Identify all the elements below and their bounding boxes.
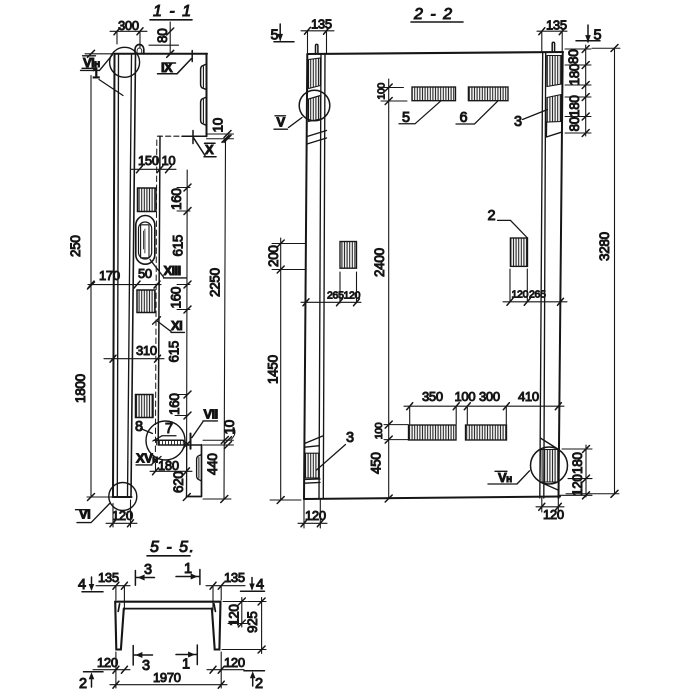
svg-text:120: 120	[227, 604, 242, 626]
svg-text:615: 615	[167, 341, 182, 363]
svg-text:2: 2	[488, 208, 496, 224]
svg-text:200: 200	[266, 245, 281, 267]
svg-text:135: 135	[98, 570, 119, 585]
svg-text:160: 160	[167, 393, 182, 415]
svg-text:250: 250	[68, 235, 83, 257]
svg-text:120: 120	[224, 655, 245, 670]
svg-text:265: 265	[529, 289, 546, 301]
svg-text:10: 10	[211, 118, 226, 132]
svg-text:8: 8	[135, 419, 143, 435]
svg-text:3: 3	[144, 562, 152, 578]
svg-text:3: 3	[346, 430, 354, 446]
svg-text:1450: 1450	[266, 355, 281, 384]
svg-text:2: 2	[255, 676, 263, 692]
svg-text:5 - 5.: 5 - 5.	[150, 539, 195, 556]
svg-text:XIII: XIII	[164, 263, 181, 278]
svg-text:2400: 2400	[372, 248, 387, 277]
svg-text:80: 80	[567, 117, 582, 131]
svg-text:80: 80	[155, 29, 170, 43]
svg-text:100: 100	[455, 389, 476, 404]
svg-text:3280: 3280	[597, 232, 612, 261]
svg-text:120: 120	[543, 507, 564, 522]
svg-text:3: 3	[142, 658, 150, 674]
svg-text:7: 7	[165, 421, 173, 437]
svg-text:615: 615	[171, 235, 186, 257]
svg-text:1800: 1800	[73, 374, 88, 403]
svg-text:100: 100	[373, 422, 385, 439]
svg-text:440: 440	[205, 453, 220, 475]
svg-text:150: 150	[138, 153, 159, 168]
svg-text:80: 80	[566, 50, 581, 64]
svg-text:VII: VII	[204, 407, 218, 422]
svg-text:V: V	[277, 115, 286, 130]
svg-text:1970: 1970	[153, 670, 181, 685]
svg-text:450: 450	[369, 452, 384, 474]
svg-text:410: 410	[518, 389, 539, 404]
svg-text:2250: 2250	[208, 268, 223, 297]
svg-text:4: 4	[78, 577, 86, 593]
svg-text:1: 1	[182, 657, 190, 673]
svg-text:160: 160	[169, 287, 184, 309]
svg-text:50: 50	[138, 266, 152, 281]
svg-text:180: 180	[567, 95, 582, 117]
svg-text:3: 3	[514, 114, 522, 130]
svg-text:XI: XI	[171, 318, 182, 333]
svg-text:VI: VI	[79, 507, 90, 522]
svg-text:2 - 2: 2 - 2	[413, 6, 454, 23]
svg-text:135: 135	[224, 570, 245, 585]
svg-text:2: 2	[79, 676, 87, 692]
svg-text:120: 120	[97, 655, 118, 670]
svg-text:170: 170	[99, 268, 120, 283]
svg-text:350: 350	[422, 389, 443, 404]
svg-text:1 - 1: 1 - 1	[153, 3, 193, 20]
svg-text:X: X	[205, 142, 214, 157]
svg-text:925: 925	[245, 611, 260, 633]
svg-text:180: 180	[570, 452, 585, 474]
svg-text:160: 160	[169, 188, 184, 210]
svg-text:120: 120	[512, 289, 529, 301]
svg-text:310: 310	[136, 343, 157, 358]
svg-text:180: 180	[567, 64, 582, 86]
svg-text:300: 300	[479, 389, 500, 404]
svg-text:120: 120	[570, 474, 585, 496]
